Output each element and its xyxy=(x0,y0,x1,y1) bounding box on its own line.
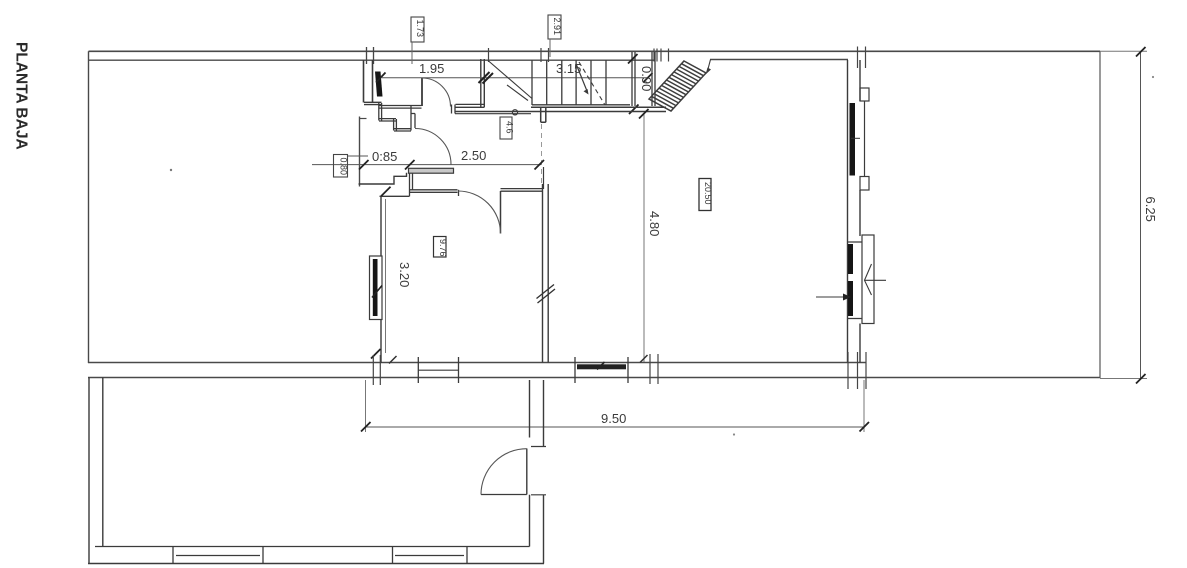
svg-text:3.20: 3.20 xyxy=(397,262,412,287)
svg-text:0.90: 0.90 xyxy=(639,66,654,91)
svg-text:1.95: 1.95 xyxy=(419,61,444,76)
svg-text:2.91: 2.91 xyxy=(552,18,562,36)
svg-text:6.25: 6.25 xyxy=(1143,197,1158,222)
svg-text:4.6: 4.6 xyxy=(505,121,515,134)
svg-text:0:85: 0:85 xyxy=(372,149,397,164)
svg-text:PLANTA BAJA: PLANTA BAJA xyxy=(13,42,30,150)
svg-text:9.50: 9.50 xyxy=(601,411,626,426)
svg-text:1.73: 1.73 xyxy=(415,20,425,38)
svg-text:0.80: 0.80 xyxy=(339,158,349,176)
svg-text:20.50: 20.50 xyxy=(703,182,713,205)
svg-text:4.80: 4.80 xyxy=(647,211,662,236)
svg-text:9.76: 9.76 xyxy=(438,239,448,257)
svg-text:2.50: 2.50 xyxy=(461,148,486,163)
